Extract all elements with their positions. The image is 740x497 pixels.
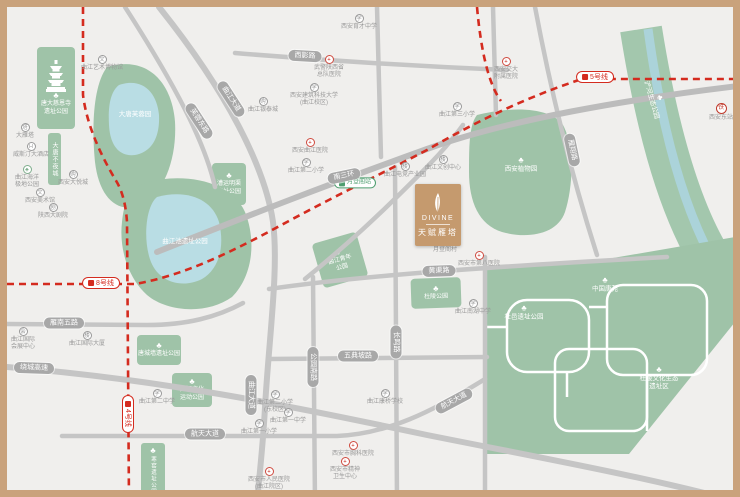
metro-line-label: 4号线 (125, 409, 132, 427)
project-name-en: DIVINE (422, 215, 454, 222)
metro-line-label: 8号线 (96, 280, 114, 287)
road-badge: 长鸣路 (391, 326, 402, 359)
road-badge: 航天大道 (434, 387, 474, 415)
metro-logo-icon (582, 74, 588, 80)
road-badge: 雁翔路 (563, 133, 581, 168)
road-badge: 曲江大道 (246, 375, 257, 415)
metro-logo-icon (125, 401, 131, 407)
road-badge: 芙蓉东路 (183, 101, 214, 141)
project-marker: DIVINE 天赋雁塔 (415, 184, 461, 246)
road-badge: 五典坡路 (338, 351, 378, 362)
road-badge: 航天大道 (185, 429, 225, 440)
metro-logo-icon (88, 280, 94, 286)
road-badge: 南三环 (327, 167, 362, 185)
road-badge: 西影路 (288, 50, 322, 63)
metro-line-badge: 4号线 (122, 395, 134, 433)
project-name-cn: 天赋雁塔 (418, 227, 458, 238)
road-badge: 公园南路 (308, 347, 319, 387)
divider (426, 224, 450, 225)
metro-line-badge: 8号线 (82, 277, 120, 289)
location-map: ♣ 唐大慈恩寺 遗址公园 大唐不夜城 ♣ 寒窑遗址公园 ♣漕运明渠遗址公园♣曲江… (0, 0, 740, 497)
road-badge: 绕城高速 (14, 362, 54, 374)
road-badge: 黄渠路 (422, 265, 455, 277)
badges-layer: 南三环曲江大道芙蓉东路西影路雁翔路长鸣路公园南路曲江大道五典坡路黄渠路雁南五路绕… (7, 7, 733, 490)
road-badge: 曲江大道 (215, 79, 246, 119)
metro-line-badge: 5号线 (576, 71, 614, 83)
feather-icon (432, 193, 444, 213)
road-badge: 雁南五路 (44, 318, 84, 329)
metro-line-label: 5号线 (590, 74, 608, 81)
